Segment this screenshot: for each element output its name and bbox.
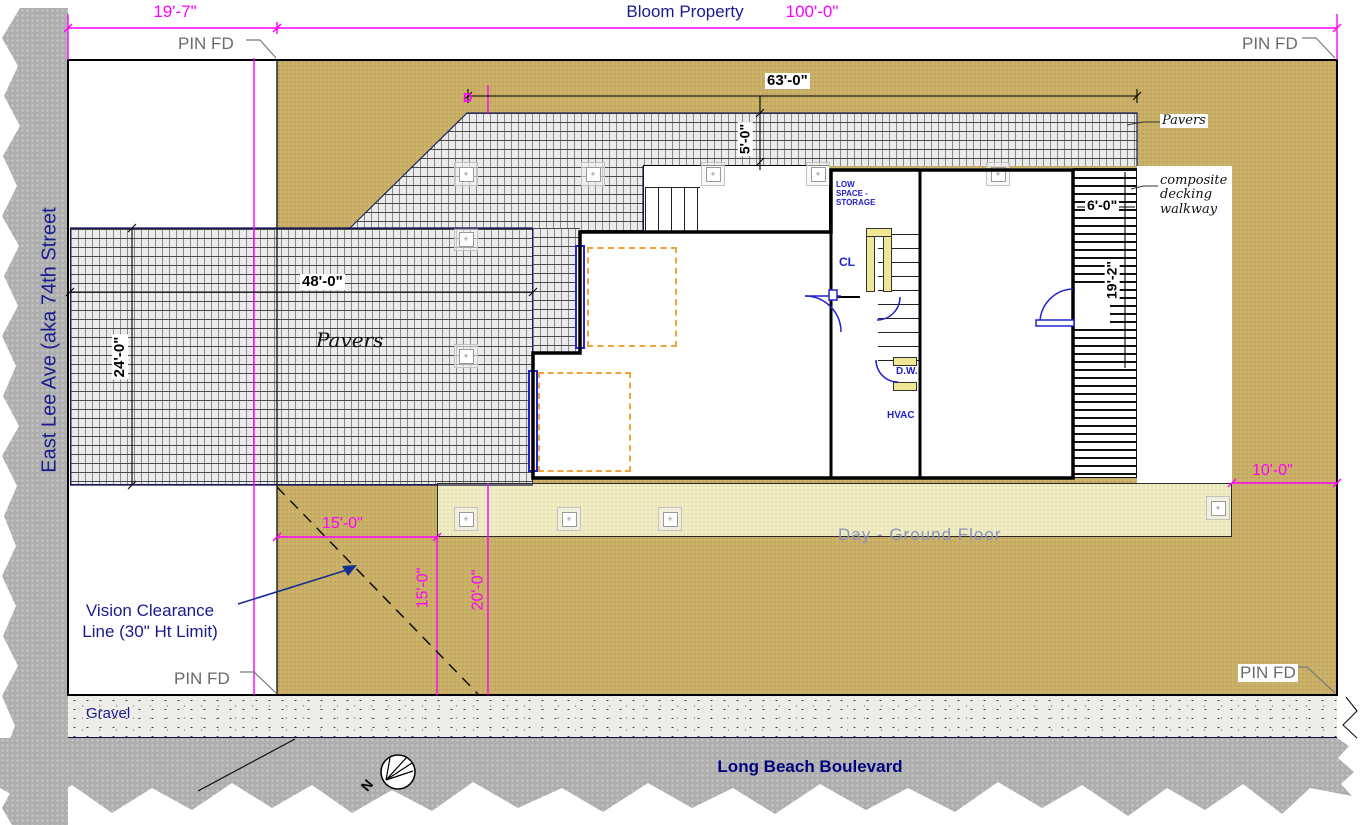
dim-19-7: 19'-7": [110, 3, 240, 21]
pin-fd-top-right: PIN FD: [1240, 35, 1300, 53]
column-marker: +: [454, 227, 478, 251]
dim-100-0: 100'-0": [762, 3, 862, 21]
column-marker: +: [454, 507, 478, 531]
dim-19-2: 19'-2": [1105, 259, 1120, 301]
dim-5-0: 5'-0": [738, 122, 753, 156]
closet-label: CL: [839, 256, 855, 269]
dim-20-0: 20'-0": [471, 570, 488, 611]
pin-fd-top-left: PIN FD: [176, 35, 236, 53]
street-name-left: East Lee Ave (aka 74th Street: [40, 207, 61, 472]
window-west-lower: [528, 370, 538, 472]
dim-15-0-v: 15'-0": [416, 568, 433, 609]
column-marker: +: [454, 162, 478, 186]
pavers-label-large: Pavers: [316, 330, 383, 351]
road-band-bottom: [0, 738, 1362, 825]
dim-10-0: 10'-0": [1252, 463, 1293, 480]
vision-clearance-label: Vision Clearance Line (30" Ht Limit): [55, 600, 245, 643]
column-marker: +: [557, 507, 581, 531]
porch-stairs: [645, 187, 700, 231]
paver-notch: [533, 228, 580, 355]
column-marker: +: [1206, 496, 1230, 520]
property-title: Bloom Property: [595, 3, 775, 21]
column-marker: +: [658, 507, 682, 531]
column-marker: +: [806, 162, 830, 186]
garage-room: [920, 168, 1073, 478]
column-marker: +: [986, 162, 1010, 186]
stair-rail-top: [866, 228, 892, 237]
dishwasher-label: D.W.: [896, 367, 918, 378]
street-name-bottom: Long Beach Boulevard: [700, 758, 920, 776]
low-space-label: LOW SPACE - STORAGE: [836, 180, 870, 208]
site-plan-drawing: + + + + + + + + + + +: [0, 0, 1370, 825]
column-marker: +: [454, 344, 478, 368]
dashed-overhang-lower: [538, 372, 631, 472]
hvac-label: HVAC: [887, 411, 915, 422]
walkway-label: composite decking walkway: [1160, 174, 1222, 217]
stair-rail-right: [883, 230, 892, 292]
ground-floor-label: Day - Ground Floor: [838, 526, 1002, 544]
dim-6-0: 6'-0": [1085, 198, 1119, 213]
window-west-upper: [575, 245, 585, 349]
dim-48-0: 48'-0": [300, 274, 345, 290]
dashed-overhang-upper: [587, 247, 677, 347]
pin-fd-bottom-right: PIN FD: [1238, 664, 1298, 682]
pin-fd-bottom-left: PIN FD: [172, 670, 232, 688]
dw-wall-top: [893, 357, 917, 366]
dim-24-0: 24'-0": [112, 335, 128, 380]
column-marker: +: [581, 162, 605, 186]
d-marker: D: [463, 91, 472, 105]
dim-15-0-h: 15'-0": [322, 516, 363, 533]
dim-63-0: 63'-0": [765, 73, 810, 89]
gravel-label: Gravel: [86, 706, 130, 722]
gravel-shoulder: [68, 695, 1337, 738]
pavers-label-small: Pavers: [1160, 114, 1208, 128]
stair-rail-left: [866, 230, 875, 292]
column-marker: +: [701, 162, 725, 186]
dw-wall-bottom: [893, 382, 917, 391]
